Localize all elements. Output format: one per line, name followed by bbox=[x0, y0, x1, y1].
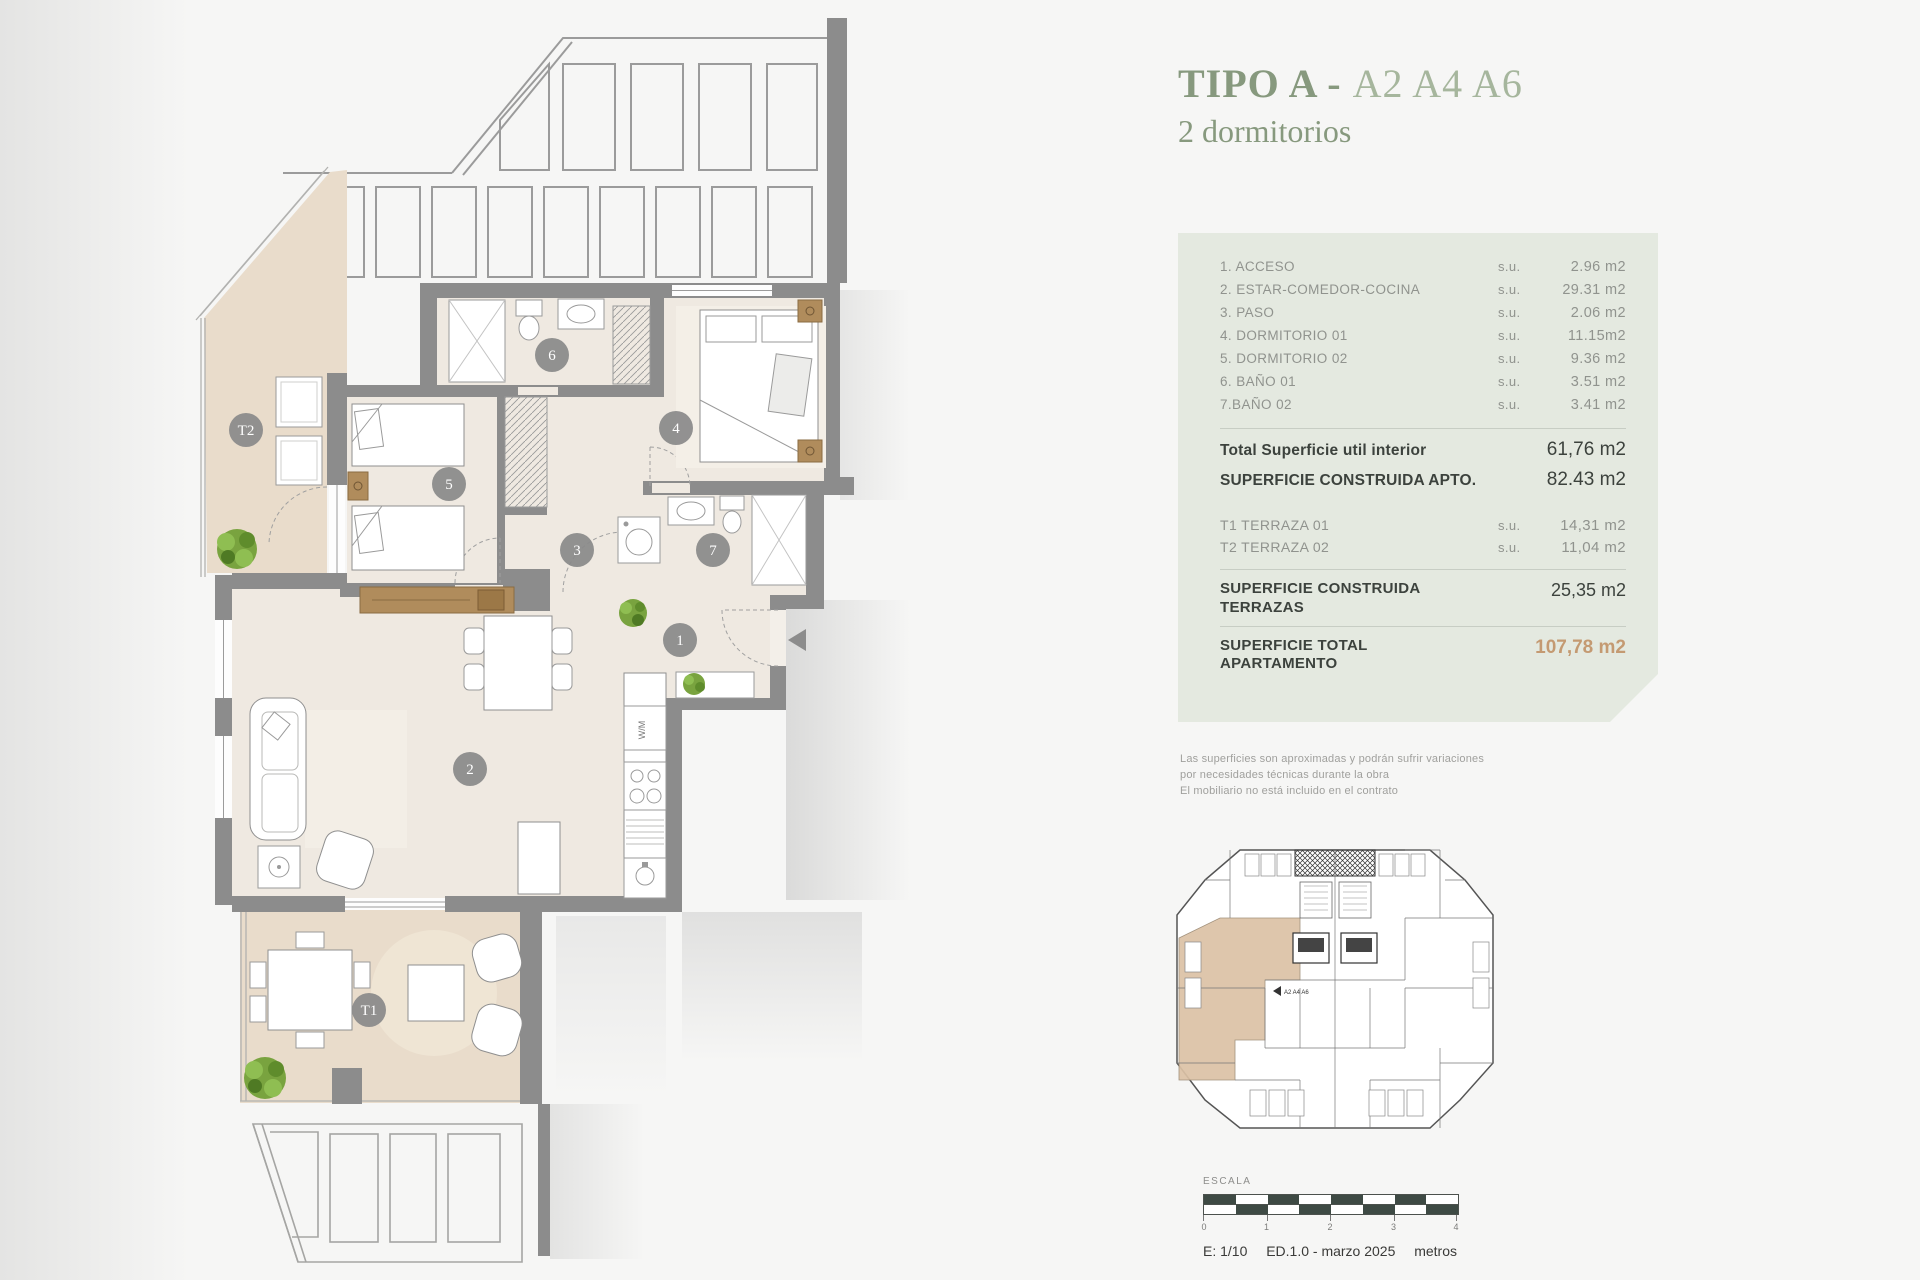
svg-text:A2 A4 A6: A2 A4 A6 bbox=[1284, 990, 1309, 996]
tick-label: 1 bbox=[1264, 1222, 1269, 1232]
wardrobe-hall bbox=[505, 397, 547, 507]
washer-label: W/M bbox=[637, 721, 647, 740]
room-row: 2. ESTAR-COMEDOR-COCINAs.u.29.31 m2 bbox=[1220, 282, 1626, 305]
disclaimer-line: por necesidades técnicas durante la obra bbox=[1180, 768, 1484, 784]
terrace-t2-floor bbox=[204, 170, 347, 573]
unit-codes: A2 A4 A6 bbox=[1353, 61, 1523, 106]
scale-bar-row-bottom bbox=[1204, 1204, 1458, 1214]
floor-plan-drawing: W/M bbox=[0, 0, 960, 1280]
tick-label: 2 bbox=[1327, 1222, 1332, 1232]
marker-1: 1 bbox=[663, 623, 697, 657]
plant-bench bbox=[683, 673, 705, 695]
type-label: TIPO A bbox=[1178, 61, 1316, 106]
terrace-row: T1 TERRAZA 01s.u.14,31 m2 bbox=[1220, 517, 1626, 539]
svg-text:5: 5 bbox=[445, 477, 453, 493]
svg-text:4: 4 bbox=[672, 421, 680, 437]
wardrobe-bath bbox=[613, 306, 650, 384]
scale-bar-captions: E: 1/10 ED.1.0 - marzo 2025 metros bbox=[1203, 1243, 1457, 1259]
svg-text:7: 7 bbox=[709, 543, 717, 559]
terraces-constructed-row: SUPERFICIE CONSTRUIDA TERRAZAS25,35 m2 bbox=[1220, 580, 1626, 618]
bedroom-01-furniture bbox=[676, 300, 826, 468]
plant-entry bbox=[619, 599, 647, 627]
panel-divider bbox=[1220, 428, 1626, 429]
title-line: TIPO A - A2 A4 A6 bbox=[1178, 60, 1523, 107]
building-key-plan: A2 A4 A6 bbox=[1165, 838, 1510, 1143]
marker-4: 4 bbox=[659, 411, 693, 445]
svg-text:6: 6 bbox=[548, 348, 556, 364]
disclaimer-text: Las superficies son aproximadas y podrán… bbox=[1180, 752, 1484, 800]
title-dash: - bbox=[1316, 61, 1352, 106]
scale-bar-ticks: 0 1 2 3 4 bbox=[1203, 1215, 1457, 1235]
room-row: 1. ACCESOs.u.2.96 m2 bbox=[1220, 259, 1626, 282]
lower-railing-outline bbox=[253, 1124, 522, 1262]
spacer bbox=[1220, 499, 1626, 517]
marker-2: 2 bbox=[453, 752, 487, 786]
disclaimer-line: El mobiliario no está incluido en el con… bbox=[1180, 784, 1484, 800]
room-row: 4. DORMITORIO 01s.u.11.15m2 bbox=[1220, 328, 1626, 351]
room-row: 6. BAÑO 01s.u.3.51 m2 bbox=[1220, 374, 1626, 397]
edition-date: ED.1.0 - marzo 2025 bbox=[1266, 1243, 1395, 1259]
panel-divider bbox=[1220, 626, 1626, 627]
room-row: 5. DORMITORIO 02s.u.9.36 m2 bbox=[1220, 351, 1626, 374]
svg-text:2: 2 bbox=[466, 762, 474, 778]
subtitle: 2 dormitorios bbox=[1178, 113, 1523, 150]
plant-t2 bbox=[217, 529, 257, 569]
sheet-title: TIPO A - A2 A4 A6 2 dormitorios bbox=[1178, 60, 1523, 150]
scale-bar-row-top bbox=[1204, 1195, 1458, 1204]
scale-bar: ESCALA 0 1 2 3 4 E: 1/10 ED.1.0 - marzo … bbox=[1203, 1176, 1463, 1259]
tick-label: 3 bbox=[1391, 1222, 1396, 1232]
constructed-row: SUPERFICIE CONSTRUIDA APTO.82.43 m2 bbox=[1220, 469, 1626, 491]
total-interior-row: Total Superficie util interior61,76 m2 bbox=[1220, 439, 1626, 461]
neighbour-party-wall bbox=[827, 18, 847, 283]
floorplan-sheet: { "title": { "type_label": "TIPO A", "da… bbox=[0, 0, 1920, 1280]
areas-panel: 1. ACCESOs.u.2.96 m2 2. ESTAR-COMEDOR-CO… bbox=[1178, 233, 1658, 722]
svg-text:T2: T2 bbox=[238, 423, 255, 439]
scale-bar-label: ESCALA bbox=[1203, 1176, 1463, 1187]
room-row: 7.BAÑO 02s.u.3.41 m2 bbox=[1220, 397, 1626, 420]
panel-divider bbox=[1220, 569, 1626, 570]
room-row: 3. PASOs.u.2.06 m2 bbox=[1220, 305, 1626, 328]
terrace-row: T2 TERRAZA 02s.u.11,04 m2 bbox=[1220, 539, 1626, 561]
disclaimer-line: Las superficies son aproximadas y podrán… bbox=[1180, 752, 1484, 768]
marker-7: 7 bbox=[696, 533, 730, 567]
scale-bar-blocks bbox=[1203, 1194, 1459, 1215]
marker-5: 5 bbox=[432, 467, 466, 501]
scale-ratio: E: 1/10 bbox=[1203, 1243, 1247, 1259]
svg-text:1: 1 bbox=[676, 633, 684, 649]
total-apartment-row: SUPERFICIE TOTAL APARTAMENTO107,78 m2 bbox=[1220, 637, 1626, 675]
marker-6: 6 bbox=[535, 338, 569, 372]
kitchen-counter: W/M bbox=[624, 673, 666, 899]
svg-text:3: 3 bbox=[573, 543, 581, 559]
units-caption: metros bbox=[1414, 1243, 1457, 1259]
marker-t1: T1 bbox=[352, 993, 386, 1027]
tick-label: 4 bbox=[1453, 1222, 1458, 1232]
marker-3: 3 bbox=[560, 533, 594, 567]
marker-t2: T2 bbox=[229, 413, 263, 447]
plant-t1 bbox=[244, 1057, 286, 1099]
svg-text:T1: T1 bbox=[361, 1003, 378, 1019]
tick-label: 0 bbox=[1201, 1222, 1206, 1232]
neighbour-unit-outline bbox=[283, 38, 827, 277]
